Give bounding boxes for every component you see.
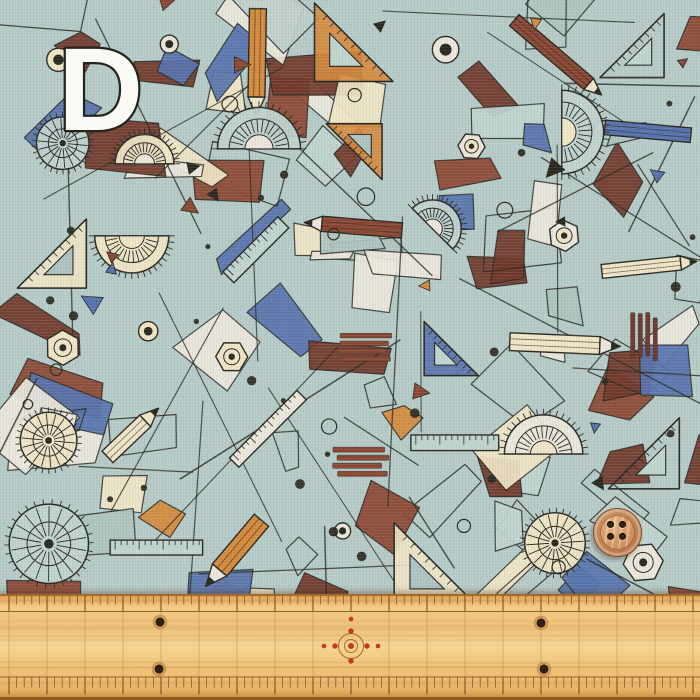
measuring-ruler <box>0 594 700 700</box>
variant-letter-text: D <box>58 24 143 156</box>
product-photo: D <box>0 0 700 700</box>
wooden-button <box>593 508 642 557</box>
variant-letter-badge: D <box>32 16 192 166</box>
button-face <box>600 515 635 550</box>
button-hole <box>619 521 626 528</box>
button-hole <box>619 533 626 540</box>
fabric-swatch: D <box>0 0 700 594</box>
ruler-face <box>0 594 700 700</box>
button-hole <box>607 521 614 528</box>
button-hole <box>607 533 614 540</box>
